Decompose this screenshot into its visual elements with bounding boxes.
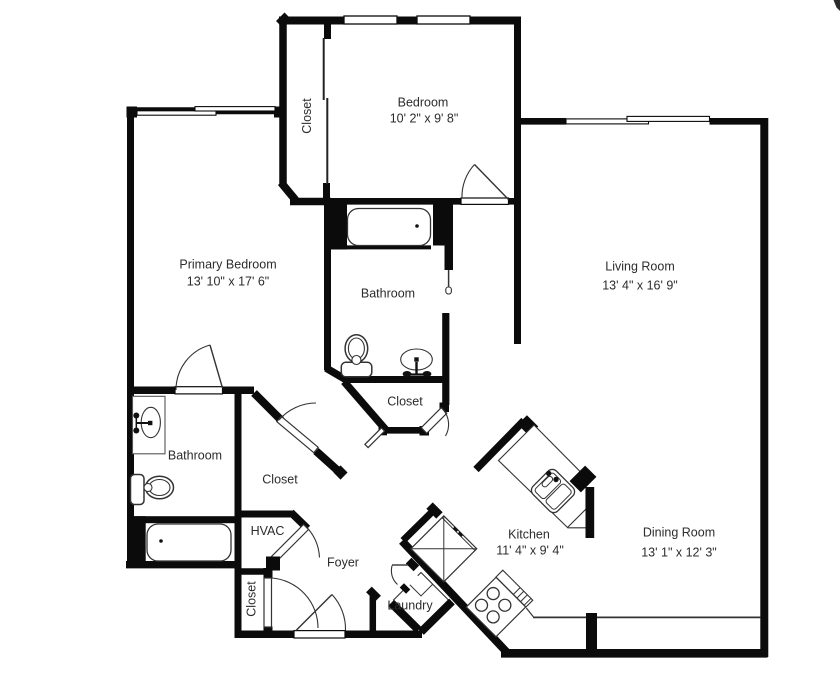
svg-text:13' 1" x 12' 3": 13' 1" x 12' 3": [641, 545, 717, 559]
svg-text:Closet: Closet: [300, 98, 314, 134]
svg-text:Living Room: Living Room: [605, 259, 674, 273]
svg-text:Foyer: Foyer: [327, 555, 359, 569]
svg-text:13' 4" x 16' 9": 13' 4" x 16' 9": [602, 278, 678, 292]
svg-text:Bathroom: Bathroom: [168, 448, 222, 462]
svg-text:Kitchen: Kitchen: [508, 527, 550, 541]
svg-text:Closet: Closet: [387, 394, 423, 408]
svg-text:Bathroom: Bathroom: [361, 286, 415, 300]
svg-text:Closet: Closet: [262, 472, 298, 486]
svg-text:Bedroom: Bedroom: [398, 96, 449, 110]
svg-text:11' 4" x 9' 4": 11' 4" x 9' 4": [496, 543, 564, 557]
svg-text:HVAC: HVAC: [251, 524, 285, 538]
svg-text:Closet: Closet: [245, 581, 259, 617]
svg-text:13' 10" x 17' 6": 13' 10" x 17' 6": [187, 274, 269, 288]
svg-text:Laundry: Laundry: [387, 598, 433, 612]
svg-text:Primary Bedroom: Primary Bedroom: [179, 257, 276, 271]
svg-text:10' 2" x 9' 8": 10' 2" x 9' 8": [390, 112, 459, 126]
svg-text:Dining Room: Dining Room: [643, 525, 715, 539]
